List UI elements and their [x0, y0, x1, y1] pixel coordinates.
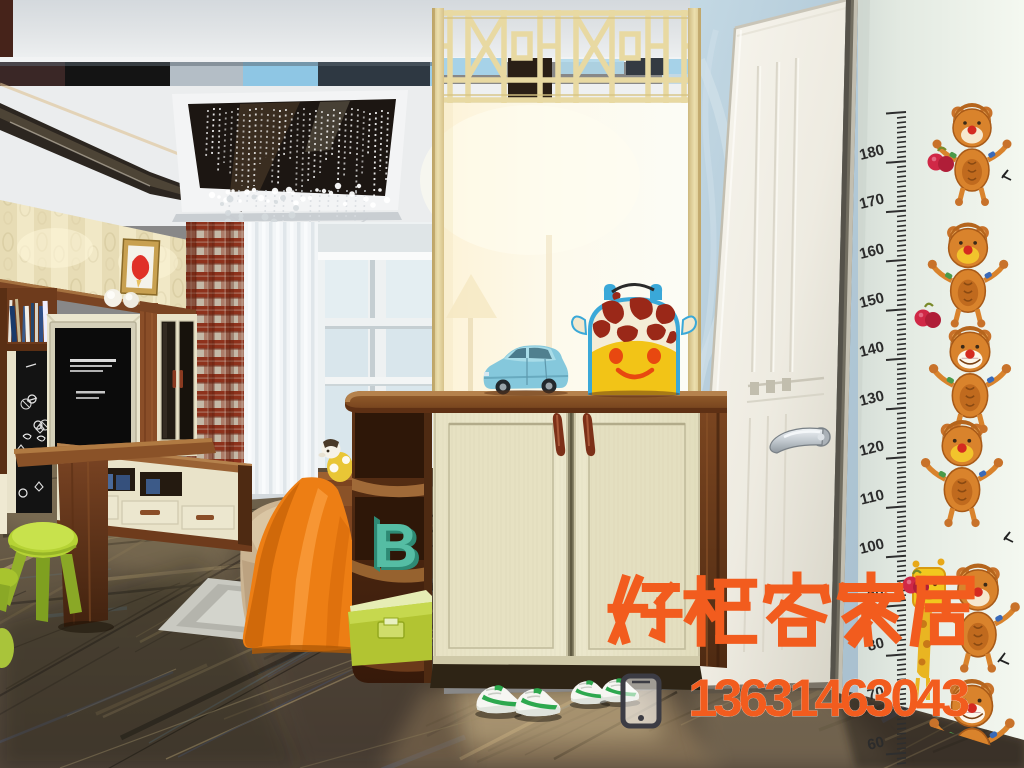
svg-text:B: B	[373, 512, 418, 581]
svg-text:13631463043: 13631463043	[688, 669, 969, 728]
